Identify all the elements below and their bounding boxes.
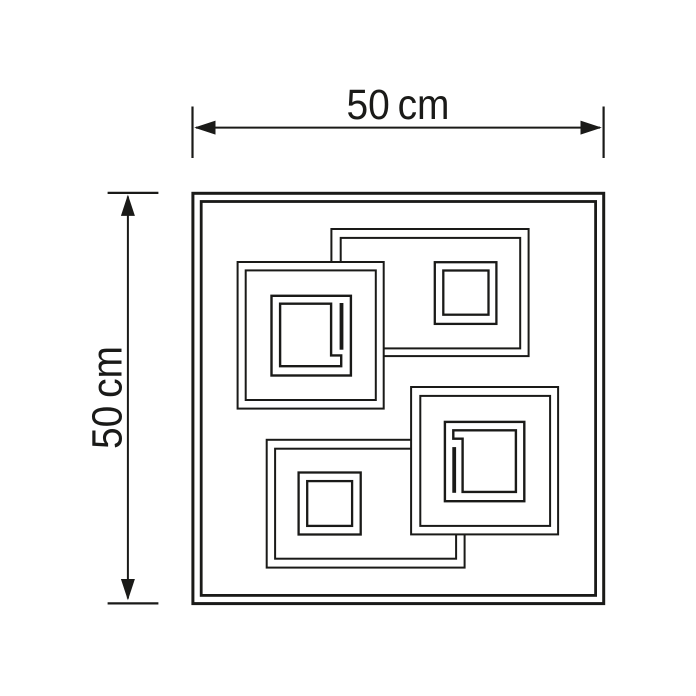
svg-text:50 cm: 50 cm [347, 81, 450, 129]
svg-text:50 cm: 50 cm [84, 346, 132, 449]
